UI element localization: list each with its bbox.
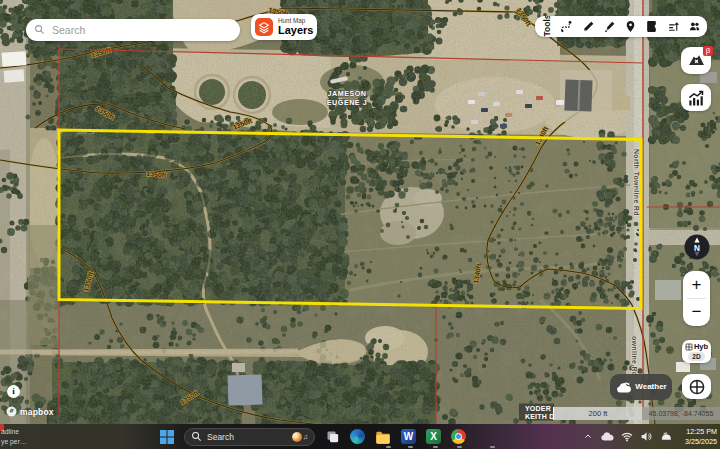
svg-text:N: N — [694, 244, 700, 253]
svg-text:Tools: Tools — [542, 16, 552, 37]
svg-text:ownline Rd: ownline Rd — [631, 336, 638, 376]
svg-text:JAMESON: JAMESON — [327, 89, 366, 98]
svg-text:North Townline Rd: North Townline Rd — [633, 149, 640, 216]
svg-text:EUGENE J: EUGENE J — [327, 98, 367, 107]
svg-text:YODER: YODER — [525, 405, 551, 412]
svg-text:KEITH D: KEITH D — [525, 413, 554, 420]
